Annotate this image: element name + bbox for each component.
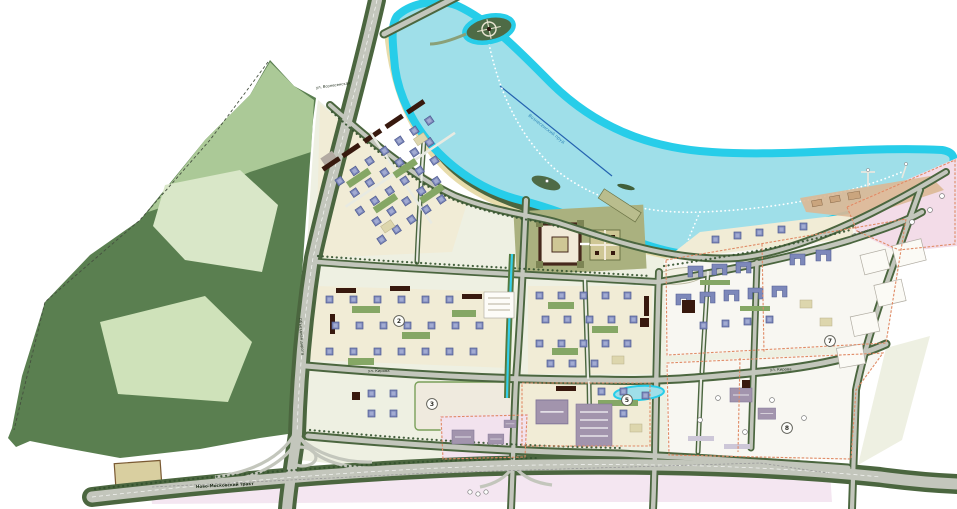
svg-text:5: 5 bbox=[625, 397, 629, 404]
park-area[interactable] bbox=[8, 60, 316, 489]
district-badge-3[interactable]: 3 bbox=[427, 399, 438, 410]
svg-text:7: 7 bbox=[828, 338, 832, 345]
master-plan-map[interactable]: 2 3 5 7 8 ул. Вознесенская Вознесенский … bbox=[0, 0, 957, 509]
svg-text:2: 2 bbox=[397, 318, 401, 325]
svg-text:3: 3 bbox=[430, 401, 434, 408]
svg-text:8: 8 bbox=[785, 425, 789, 432]
district-badge-7[interactable]: 7 bbox=[825, 336, 836, 347]
street-label-voznesenskaya: ул. Вознесенская bbox=[315, 80, 350, 90]
district-badge-2[interactable]: 2 bbox=[394, 316, 405, 327]
pier-west bbox=[545, 179, 548, 182]
cell-central bbox=[528, 286, 652, 374]
district-badge-5[interactable]: 5 bbox=[622, 395, 633, 406]
district-badge-8[interactable]: 8 bbox=[782, 423, 793, 434]
street-label-kirova-east: ул. Кирова bbox=[770, 366, 792, 372]
street-label-kirova-west: ул. Кирова bbox=[368, 368, 390, 373]
map-canvas: 2 3 5 7 8 ул. Вознесенская Вознесенский … bbox=[0, 0, 957, 509]
